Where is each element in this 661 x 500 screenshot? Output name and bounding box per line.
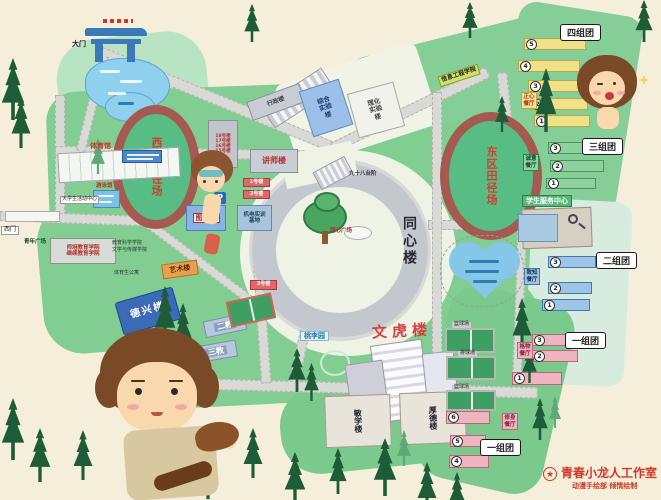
dorm-1-1: 1 (512, 372, 562, 385)
pine-tree (72, 430, 94, 480)
wenhu-building-label: 文虎楼 (372, 320, 433, 341)
volleyball-court (446, 356, 496, 380)
group1-lower-label: 一组团 (480, 439, 521, 456)
magnifier-icon (568, 214, 578, 224)
no3-building: 3号楼 (250, 280, 277, 290)
west-gate-label: 西门 (1, 226, 19, 235)
pine-tree (28, 428, 52, 482)
xiushen-canteen-label: 修身餐厅 (502, 413, 518, 430)
gate-inscription-marks (103, 19, 133, 23)
dorm-2-1: 1 (542, 299, 590, 311)
east-track-label: 东区田径场 (483, 146, 499, 206)
minxue-building: 敏学楼 (324, 394, 392, 448)
dorm-4-4: 4 (518, 60, 580, 72)
group2-label: 二组团 (596, 252, 637, 269)
dorm-1-6: 6 (446, 411, 490, 424)
sports-dorm-label: 体育生公寓 (114, 270, 139, 276)
training-base-building: 机电实训基地 (237, 205, 272, 231)
dorm-1-2: 2 (532, 350, 578, 362)
no1-building: 1号楼 (243, 178, 270, 187)
literature-media-label: 文学与传媒学院 (112, 247, 147, 253)
court2-label: 排球场 (458, 351, 477, 357)
campus-map: 大门 西门 青年广场 西区田径场 东区田径场 同心广场 同心楼 九十八台阶 体育… (0, 0, 661, 500)
studio-logo-star-icon: ★ (543, 467, 557, 481)
natatorium-label: 游泳馆 (96, 183, 113, 190)
court3-label: 篮球场 (452, 385, 471, 391)
gym-building (57, 147, 180, 183)
service-center-wing (518, 214, 558, 242)
dorm-3-1: 1 (546, 178, 596, 189)
college-b-label: 继续教育学院 (66, 251, 99, 257)
studio-credit-sub: 动漫手绘部 倾情绘制 (572, 482, 637, 490)
youth-square-label: 青年广场 (24, 239, 46, 246)
activity-center-label: 大学生活动中心 (60, 196, 99, 204)
main-gate-structure (85, 26, 149, 62)
dorm-1-4: 4 (449, 455, 489, 468)
zhizhi-canteen-label: 致知餐厅 (524, 268, 540, 285)
court1-label: 篮球场 (452, 322, 471, 328)
studio-credit: 青春小龙人工作室 (561, 466, 657, 480)
dorm-2-3: 3 (548, 256, 596, 268)
no2-building: 2号楼 (243, 190, 270, 199)
gewu-canteen-label: 格物餐厅 (517, 342, 533, 359)
plaza-tree-trunk (322, 231, 328, 244)
mascot-girl-east (575, 55, 655, 145)
edu-science-label: 教育科学学院 (112, 240, 142, 246)
tongxin-building-label: 同心楼 (399, 216, 419, 267)
taoli-garden-label: 桃李园 (300, 331, 329, 341)
tongxin-square-label: 同心广场 (330, 228, 352, 235)
teacher-training-college: 师培教育学院 继续教育学院 (50, 238, 116, 264)
dorm-3-2: 2 (550, 160, 604, 172)
mascot-girl-southwest (95, 328, 240, 500)
heart-lake (447, 242, 523, 304)
zhengxin-canteen-label: 正心餐厅 (521, 92, 537, 109)
gym-label: 体育馆 (90, 142, 111, 150)
main-gate-label: 大门 (72, 40, 86, 48)
pine-tree (243, 4, 261, 42)
road-easttrack-west (432, 92, 442, 384)
steps-label: 九十八台阶 (349, 171, 377, 178)
west-gate-arcade (5, 211, 60, 222)
mascot-kid-northwest (185, 150, 241, 265)
chengyi-canteen-label: 诚意餐厅 (523, 154, 539, 171)
group4-label: 四组团 (560, 24, 601, 41)
lecturer-building: 讲师楼 (250, 149, 298, 173)
group1-upper-label: 一组团 (565, 332, 606, 349)
basketball-court-2 (446, 390, 496, 411)
pine-tree (242, 428, 264, 478)
info-sign (122, 150, 162, 163)
service-center-label: 学生服务中心 (522, 195, 572, 207)
plaza-tree-top (314, 192, 340, 212)
dorm-2-2: 2 (548, 282, 592, 294)
pine-tree (0, 398, 26, 460)
